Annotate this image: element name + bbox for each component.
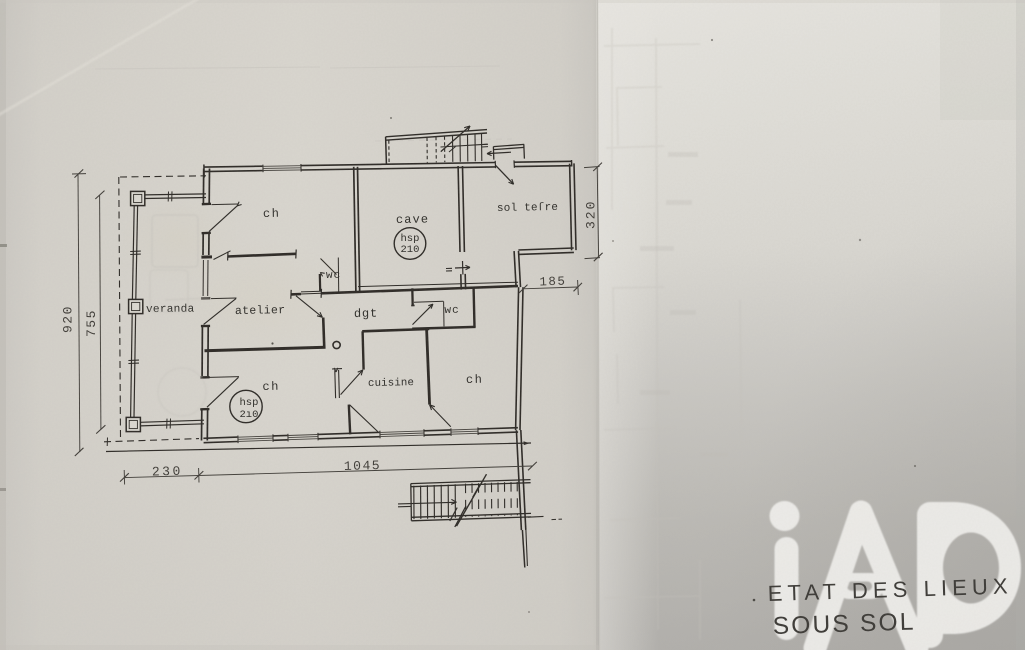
- svg-text:185: 185: [539, 275, 566, 290]
- svg-text:2ı0: 2ı0: [240, 409, 259, 421]
- svg-text:dgt: dgt: [354, 307, 378, 321]
- svg-text:320: 320: [584, 200, 599, 229]
- svg-text:atelier: atelier: [235, 304, 286, 318]
- svg-text:wc: wc: [326, 270, 341, 282]
- svg-text:920: 920: [61, 305, 76, 333]
- svg-text:wc: wc: [444, 305, 459, 317]
- svg-text:210: 210: [401, 244, 420, 256]
- svg-text:230: 230: [152, 464, 183, 480]
- svg-text:cave: cave: [396, 212, 429, 227]
- svg-text:1045: 1045: [344, 458, 382, 474]
- svg-text:ch: ch: [466, 373, 484, 387]
- svg-text:755: 755: [84, 309, 99, 337]
- svg-text:hsp: hsp: [240, 397, 259, 409]
- svg-text:ch: ch: [262, 380, 280, 394]
- svg-text:ch: ch: [263, 207, 281, 221]
- svg-text:cuisine: cuisine: [368, 377, 414, 390]
- svg-text:sol teſre: sol teſre: [497, 202, 558, 215]
- svg-text:SOUS SOL: SOUS SOL: [772, 609, 916, 640]
